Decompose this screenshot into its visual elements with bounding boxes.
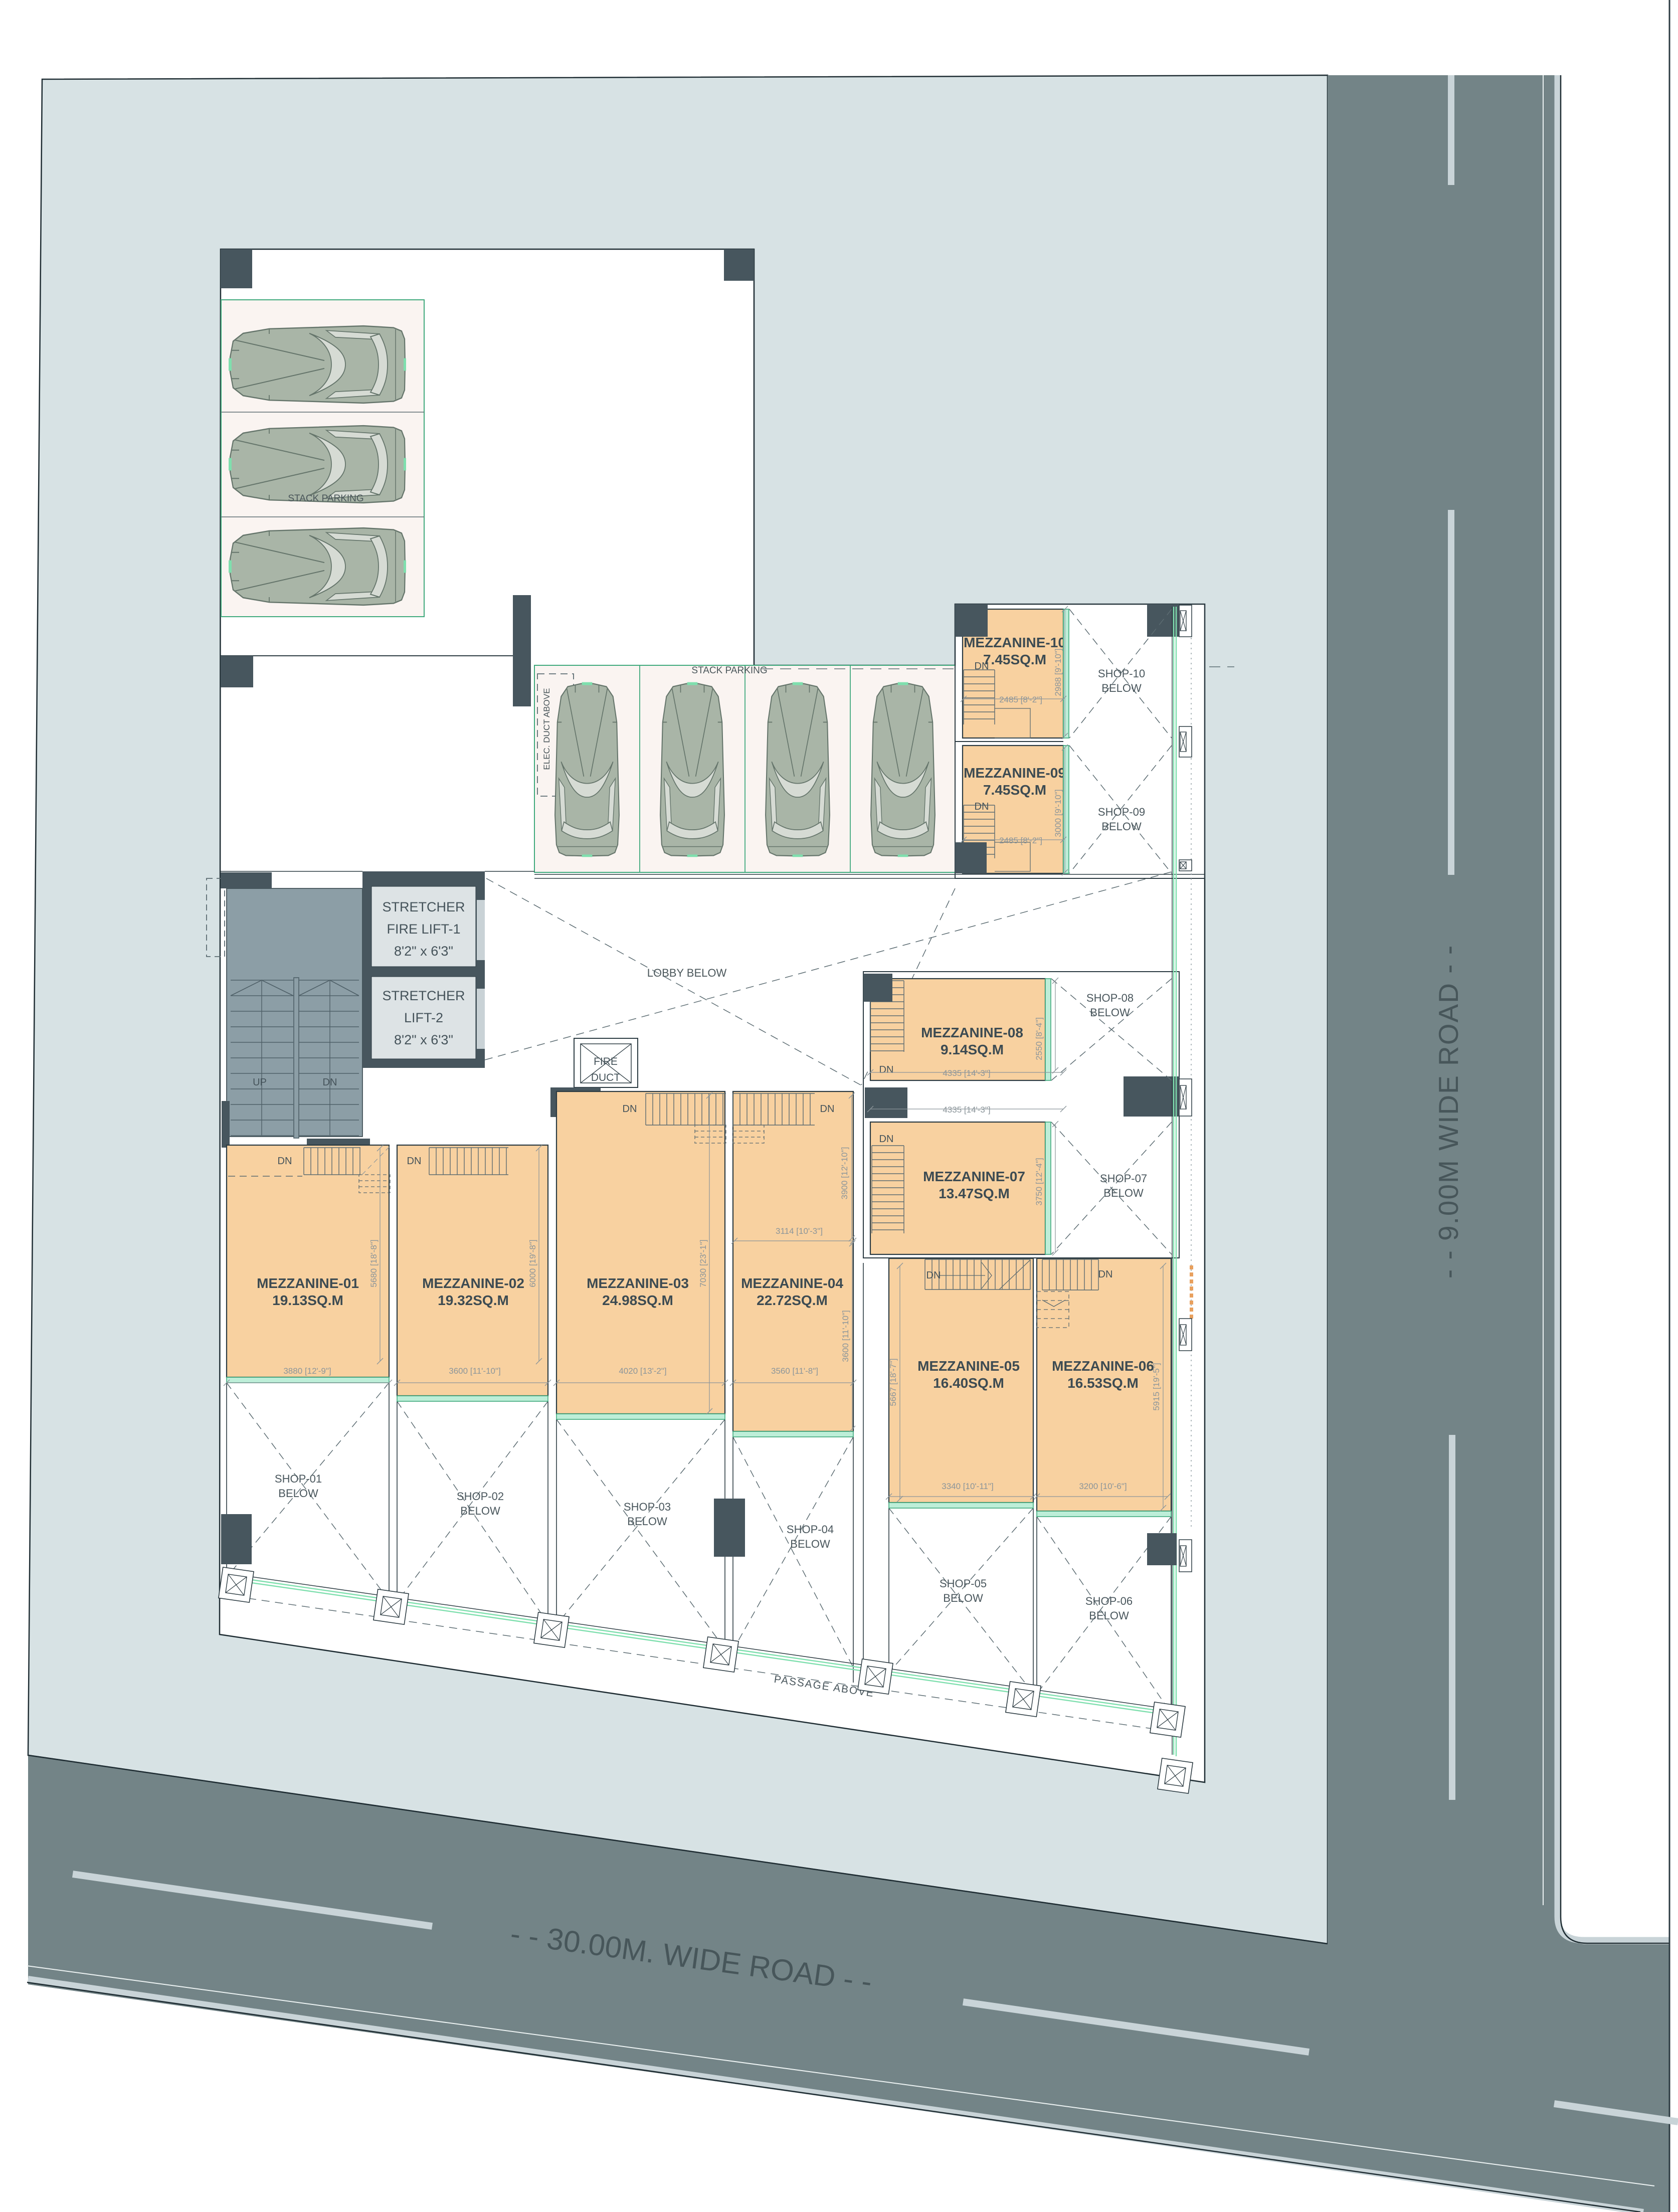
svg-text:BELOW: BELOW — [460, 1505, 500, 1517]
svg-text:SHOP-05: SHOP-05 — [940, 1577, 987, 1590]
svg-text:3900 [12'-10"]: 3900 [12'-10"] — [840, 1147, 849, 1200]
svg-text:BELOW: BELOW — [1103, 1187, 1144, 1199]
svg-text:19.32SQ.M: 19.32SQ.M — [438, 1293, 509, 1308]
svg-text:DN: DN — [879, 1064, 894, 1075]
svg-text:SHOP-08: SHOP-08 — [1086, 992, 1134, 1004]
svg-text:BELOW: BELOW — [1089, 1609, 1129, 1622]
svg-text:3880 [12'-9"]: 3880 [12'-9"] — [283, 1366, 331, 1376]
svg-text:SHOP-01: SHOP-01 — [275, 1472, 322, 1485]
svg-text:BELOW: BELOW — [943, 1592, 983, 1604]
svg-text:4020 [13'-2"]: 4020 [13'-2"] — [619, 1366, 666, 1376]
svg-text:SHOP-06: SHOP-06 — [1085, 1595, 1133, 1607]
svg-text:24.98SQ.M: 24.98SQ.M — [602, 1293, 673, 1308]
svg-text:9.14SQ.M: 9.14SQ.M — [941, 1042, 1004, 1057]
svg-text:MEZZANINE-01: MEZZANINE-01 — [257, 1275, 359, 1291]
svg-text:STACK PARKING: STACK PARKING — [691, 665, 767, 676]
svg-text:7030 [23'-1"]: 7030 [23'-1"] — [698, 1239, 708, 1287]
svg-text:DN: DN — [926, 1270, 941, 1281]
svg-text:3200 [10'-6"]: 3200 [10'-6"] — [1079, 1482, 1127, 1491]
svg-text:DN: DN — [1098, 1269, 1113, 1280]
svg-text:4335 [14'-3"]: 4335 [14'-3"] — [943, 1068, 990, 1078]
svg-text:ELEC. DUCT ABOVE: ELEC. DUCT ABOVE — [542, 688, 551, 770]
svg-text:BELOW: BELOW — [278, 1487, 318, 1500]
svg-text:BELOW: BELOW — [1090, 1006, 1130, 1019]
svg-text:MEZZANINE-06: MEZZANINE-06 — [1052, 1358, 1154, 1374]
svg-text:MEZZANINE-02: MEZZANINE-02 — [422, 1275, 524, 1291]
svg-text:BELOW: BELOW — [790, 1538, 830, 1550]
svg-text:MEZZANINE-07: MEZZANINE-07 — [923, 1169, 1025, 1184]
svg-text:8'2" x 6'3": 8'2" x 6'3" — [394, 1032, 453, 1047]
svg-text:2485 [8'-2"]: 2485 [8'-2"] — [999, 836, 1042, 845]
svg-text:5915 [19'-5"]: 5915 [19'-5"] — [1152, 1363, 1161, 1410]
svg-text:DN: DN — [820, 1103, 835, 1115]
svg-text:7.45SQ.M: 7.45SQ.M — [983, 782, 1046, 798]
svg-text:FIRE: FIRE — [594, 1056, 618, 1067]
svg-text:LIFT-2: LIFT-2 — [404, 1010, 443, 1025]
svg-text:3560 [11'-8"]: 3560 [11'-8"] — [771, 1366, 818, 1376]
svg-text:LOBBY BELOW: LOBBY BELOW — [647, 967, 727, 979]
svg-text:MEZZANINE-10: MEZZANINE-10 — [964, 635, 1066, 650]
svg-text:19.13SQ.M: 19.13SQ.M — [272, 1293, 343, 1308]
svg-text:DN: DN — [623, 1103, 637, 1115]
svg-text:DN: DN — [879, 1134, 894, 1145]
svg-text:SHOP-09: SHOP-09 — [1098, 806, 1145, 818]
svg-text:STACK PARKING: STACK PARKING — [288, 493, 363, 504]
svg-text:SHOP-02: SHOP-02 — [457, 1490, 504, 1503]
svg-text:BELOW: BELOW — [627, 1515, 667, 1528]
svg-text:MEZZANINE-08: MEZZANINE-08 — [921, 1025, 1023, 1040]
svg-text:3340 [10'-11"]: 3340 [10'-11"] — [942, 1482, 994, 1491]
svg-text:DN: DN — [975, 801, 989, 812]
svg-text:DUCT: DUCT — [591, 1072, 620, 1083]
svg-text:MEZZANINE-05: MEZZANINE-05 — [917, 1358, 1020, 1374]
svg-text:16.40SQ.M: 16.40SQ.M — [933, 1375, 1004, 1391]
svg-text:DN: DN — [323, 1077, 337, 1088]
svg-text:DN: DN — [278, 1156, 292, 1167]
svg-text:BELOW: BELOW — [1101, 820, 1142, 833]
svg-text:STRETCHER: STRETCHER — [382, 988, 465, 1003]
svg-text:5680 [18'-8"]: 5680 [18'-8"] — [369, 1239, 379, 1287]
svg-text:16.53SQ.M: 16.53SQ.M — [1067, 1375, 1139, 1391]
svg-text:MEZZANINE-03: MEZZANINE-03 — [587, 1275, 689, 1291]
svg-text:BELOW: BELOW — [1101, 682, 1142, 694]
svg-text:2988 [9'-10"]: 2988 [9'-10"] — [1053, 648, 1063, 696]
svg-text:3114 [10'-3"]: 3114 [10'-3"] — [776, 1226, 823, 1236]
svg-text:SHOP-03: SHOP-03 — [624, 1501, 671, 1513]
svg-text:SHOP-10: SHOP-10 — [1098, 667, 1145, 680]
svg-text:7.45SQ.M: 7.45SQ.M — [983, 652, 1046, 667]
svg-text:3600 [11'-10"]: 3600 [11'-10"] — [449, 1366, 501, 1376]
svg-text:FIRE LIFT-1: FIRE LIFT-1 — [387, 921, 460, 937]
svg-text:2485 [8'-2"]: 2485 [8'-2"] — [999, 695, 1042, 704]
svg-text:3000 [9'-10"]: 3000 [9'-10"] — [1053, 789, 1063, 837]
svg-text:22.72SQ.M: 22.72SQ.M — [757, 1293, 828, 1308]
svg-text:DN: DN — [975, 661, 989, 672]
svg-text:DN: DN — [407, 1156, 422, 1167]
svg-text:SHOP-07: SHOP-07 — [1100, 1172, 1147, 1185]
svg-text:5667 [18'-7"]: 5667 [18'-7"] — [888, 1358, 898, 1406]
svg-text:2550 [8'-4"]: 2550 [8'-4"] — [1034, 1017, 1044, 1060]
svg-text:MEZZANINE-04: MEZZANINE-04 — [741, 1275, 843, 1291]
svg-text:3600 [11'-10"]: 3600 [11'-10"] — [841, 1310, 850, 1362]
svg-text:STRETCHER: STRETCHER — [382, 899, 465, 914]
svg-text:SHOP-04: SHOP-04 — [787, 1523, 834, 1536]
svg-text:3750 [12'-4"]: 3750 [12'-4"] — [1034, 1158, 1044, 1205]
svg-text:UP: UP — [253, 1077, 267, 1088]
svg-text:6000 [19'-8"]: 6000 [19'-8"] — [528, 1239, 537, 1287]
svg-text:4335 [14'-3"]: 4335 [14'-3"] — [943, 1105, 990, 1115]
svg-text:8'2" x 6'3": 8'2" x 6'3" — [394, 944, 453, 959]
svg-text:MEZZANINE-09: MEZZANINE-09 — [964, 765, 1066, 781]
svg-text:- - 9.00M WIDE ROAD - -: - - 9.00M WIDE ROAD - - — [1433, 945, 1464, 1278]
svg-text:13.47SQ.M: 13.47SQ.M — [939, 1186, 1010, 1201]
